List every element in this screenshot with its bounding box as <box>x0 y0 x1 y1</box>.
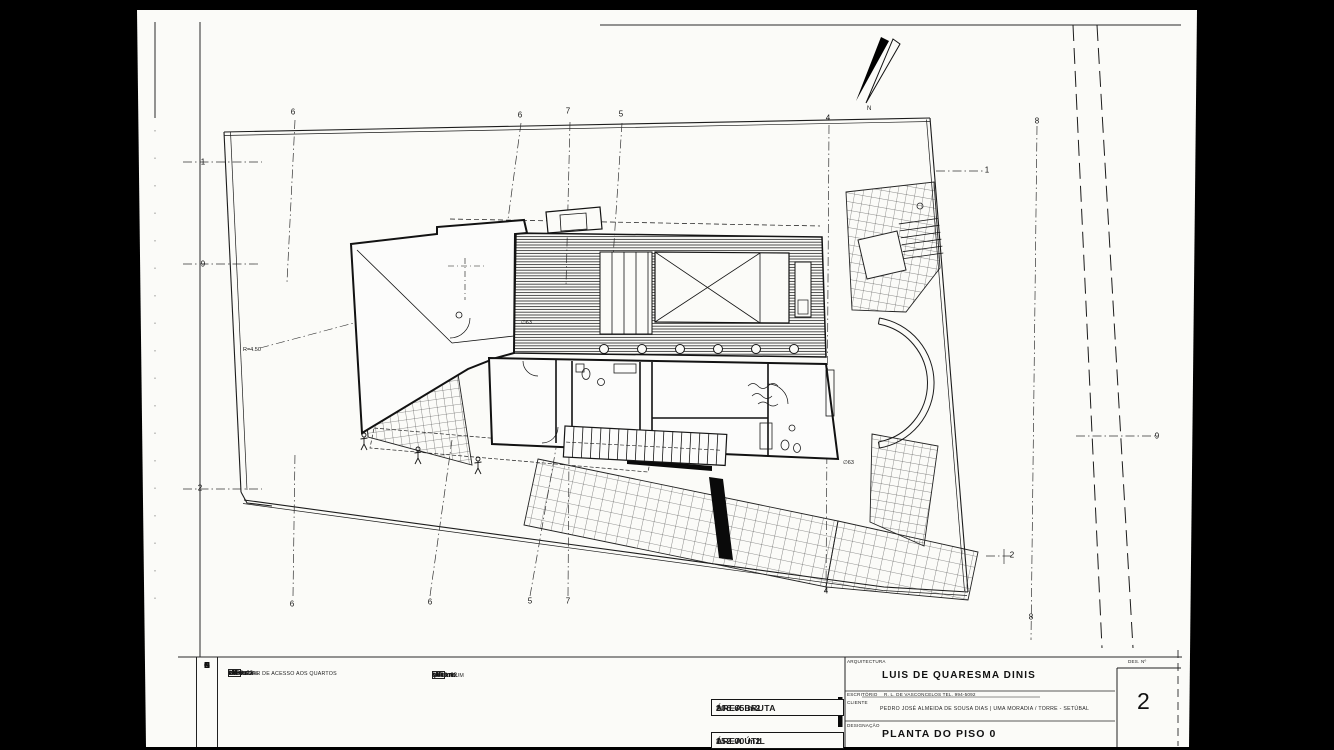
curved-wall <box>878 318 934 448</box>
scanned-drawing-sheet: { "title_block": { "architecture_label":… <box>0 0 1334 750</box>
floor-plan-drawing: N <box>0 0 1334 750</box>
road-lines <box>1073 25 1133 648</box>
north-arrow-icon: N <box>856 37 900 112</box>
north-label: N <box>867 106 871 112</box>
title-block-lines <box>845 657 1181 747</box>
